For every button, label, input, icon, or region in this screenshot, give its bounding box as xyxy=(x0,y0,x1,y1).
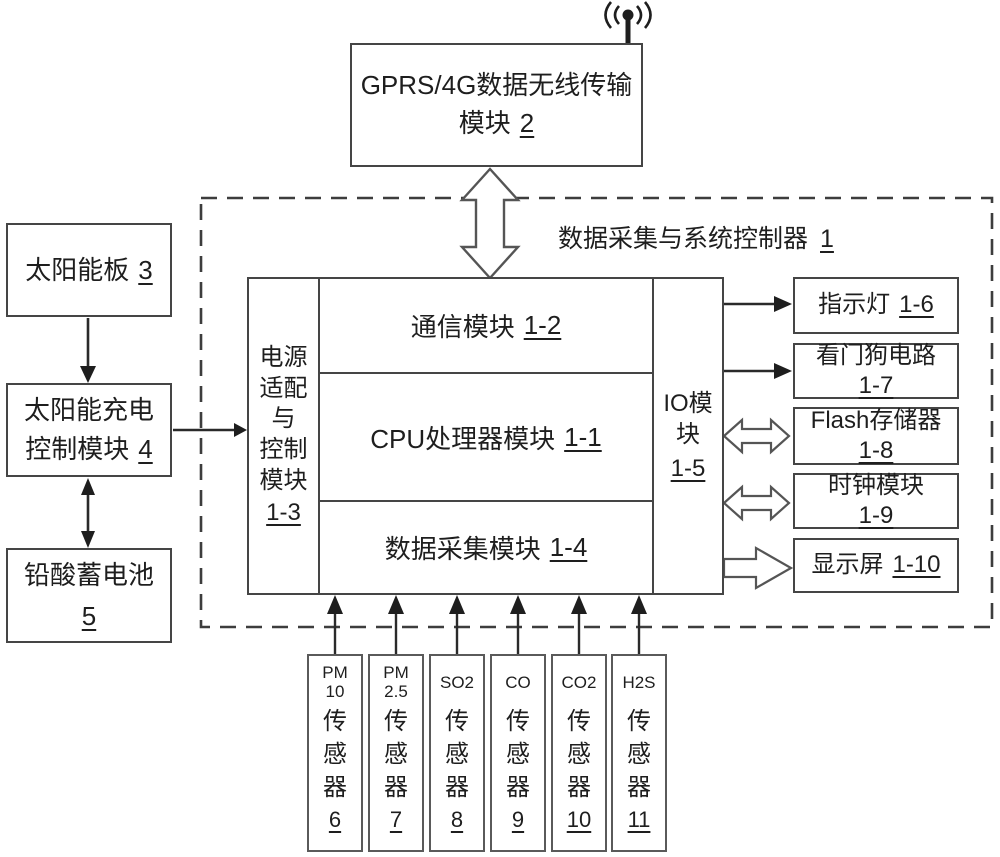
gprs-4g-module-label: GPRS/4G数据无线传输模块2 xyxy=(356,67,637,142)
sensor-pm25-box: PM 2.5 传 感 器 7 xyxy=(368,654,424,852)
sensor-so2-gas: SO2 xyxy=(440,661,474,705)
controller-core-box: 电源 适配 与 控制 模块 1-3 通信模块1-2 CPU处理器模块1-1 数据… xyxy=(247,277,724,595)
sensor-pm10-box: PM 10 传 感 器 6 xyxy=(307,654,363,852)
arrow-sensor-co2 xyxy=(571,595,587,654)
arrow-io-indicator xyxy=(724,296,792,312)
arrow-gprs-controller xyxy=(462,169,518,278)
arrow-charger-to-power-module xyxy=(173,423,247,437)
solar-charge-controller-box: 太阳能充电控制模块4 xyxy=(6,383,172,477)
communication-module: 通信模块1-2 xyxy=(320,279,652,374)
watchdog-circuit-box: 看门狗电路1-7 xyxy=(793,343,959,399)
arrow-io-flash xyxy=(724,420,789,452)
sensor-so2-box: SO2 传 感 器 8 xyxy=(429,654,485,852)
sensor-pm10-gas: PM 10 xyxy=(322,661,348,705)
arrow-io-watchdog xyxy=(724,363,792,379)
io-module: IO模 块 1-5 xyxy=(652,279,722,593)
arrow-io-display xyxy=(724,548,791,588)
power-adapter-module: 电源 适配 与 控制 模块 1-3 xyxy=(249,279,320,593)
arrow-sensor-pm25 xyxy=(388,595,404,654)
gprs-ref: 2 xyxy=(520,108,534,138)
sensor-h2s-gas: H2S xyxy=(622,661,655,705)
arrow-sensor-co xyxy=(510,595,526,654)
arrow-sensor-pm10 xyxy=(327,595,343,654)
sensor-co-box: CO 传 感 器 9 xyxy=(490,654,546,852)
io-module-ref: 1-5 xyxy=(671,453,706,484)
arrow-io-clock xyxy=(724,487,789,519)
display-screen-box: 显示屏1-10 xyxy=(793,538,959,593)
core-rows: 通信模块1-2 CPU处理器模块1-1 数据采集模块1-4 xyxy=(320,279,652,593)
arrow-charger-battery xyxy=(81,478,95,548)
indicator-light-box: 指示灯1-6 xyxy=(793,277,959,334)
cpu-module: CPU处理器模块1-1 xyxy=(320,374,652,502)
controller-ref: 1 xyxy=(820,225,834,253)
arrow-sensor-so2 xyxy=(449,595,465,654)
solar-panel-box: 太阳能板3 xyxy=(6,223,172,317)
power-adapter-ref: 1-3 xyxy=(266,498,301,529)
sensor-co-gas: CO xyxy=(505,661,531,705)
sensor-co2-box: CO2 传 感 器 10 xyxy=(551,654,607,852)
arrow-sensor-h2s xyxy=(631,595,647,654)
antenna-icon xyxy=(606,2,651,43)
clock-module-box: 时钟模块1-9 xyxy=(793,473,959,529)
diagram-canvas: GPRS/4G数据无线传输模块2 数据采集与系统控制器1 电源 适配 与 控制 … xyxy=(0,0,1000,857)
sensor-pm25-gas: PM 2.5 xyxy=(383,661,409,705)
sensor-h2s-box: H2S 传 感 器 11 xyxy=(611,654,667,852)
arrow-solar-to-charger xyxy=(80,318,96,383)
flash-memory-box: Flash存储器1-8 xyxy=(793,407,959,465)
lead-acid-battery-box: 铅酸蓄电池5 xyxy=(6,548,172,643)
io-module-label: IO模 块 xyxy=(663,388,712,450)
controller-title: 数据采集与系统控制器1 xyxy=(558,219,834,255)
sensor-co2-gas: CO2 xyxy=(562,661,597,705)
data-acquisition-module: 数据采集模块1-4 xyxy=(320,502,652,593)
power-adapter-label: 电源 适配 与 控制 模块 xyxy=(260,343,308,497)
gprs-4g-module-box: GPRS/4G数据无线传输模块2 xyxy=(350,43,643,167)
